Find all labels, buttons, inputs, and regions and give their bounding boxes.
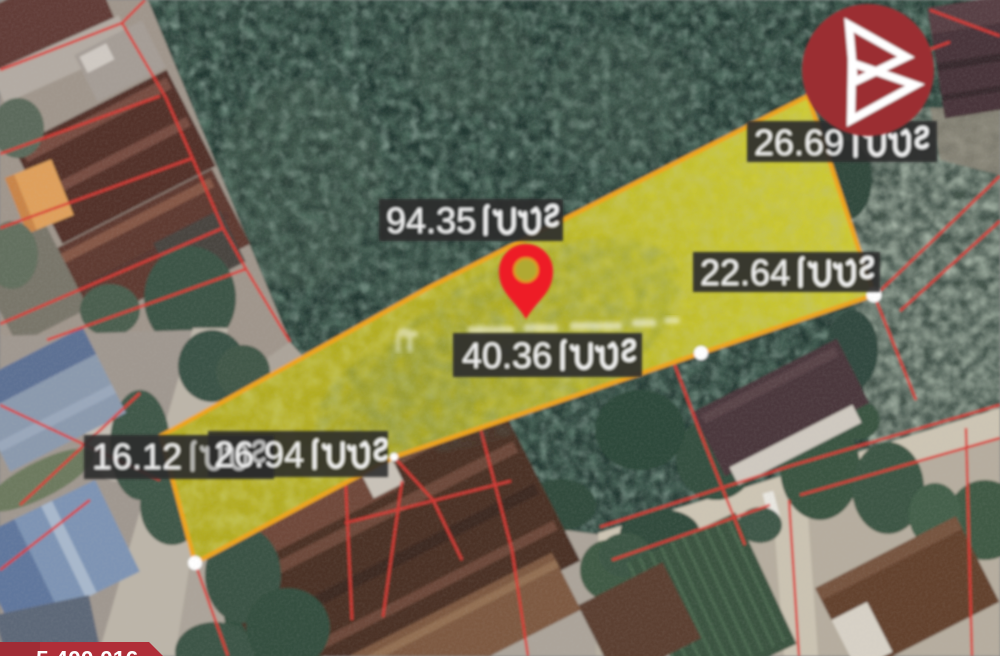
svg-text:26.94: 26.94: [214, 434, 304, 475]
svg-text:5,400,016: 5,400,016: [36, 646, 138, 656]
svg-text:94.35: 94.35: [386, 200, 476, 241]
svg-text:16.12: 16.12: [92, 436, 182, 477]
svg-text:26.69: 26.69: [754, 122, 844, 163]
svg-text:40.36: 40.36: [462, 335, 552, 376]
svg-text:22.64: 22.64: [700, 252, 790, 293]
